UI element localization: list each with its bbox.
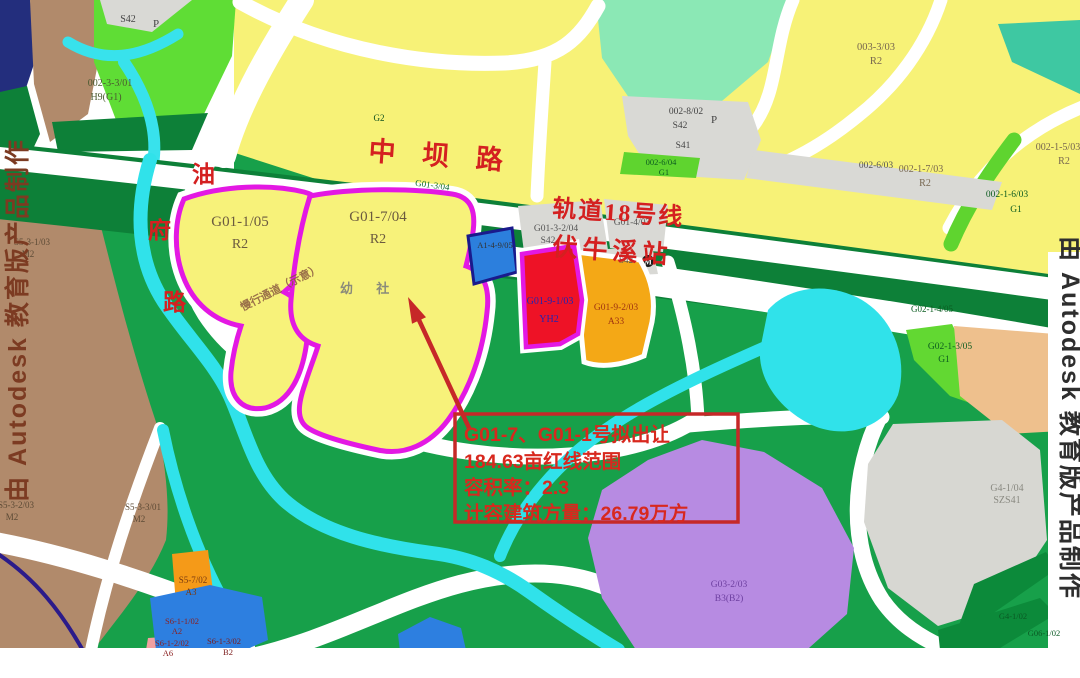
parcel-label: 002-1-5/03 <box>1036 142 1080 153</box>
parcel-label: G1 <box>938 355 950 365</box>
parcel-label: G1 <box>659 167 669 177</box>
road-top2 <box>537 62 545 196</box>
parcel-label: 002-1-7/03 <box>899 164 943 175</box>
parcel-label: A3 <box>186 587 197 597</box>
parcel-label: G1 <box>1010 205 1022 215</box>
annotation-line3: 容积率：2.3 <box>464 476 569 499</box>
parcel-label: M2 <box>133 514 146 524</box>
parcel-label: G06-1/02 <box>1028 628 1061 638</box>
parcel-label: R2 <box>919 178 931 189</box>
parcel-label: S5-7/02 <box>179 575 208 585</box>
annotation-line4: 计容建筑方量：26.79万方 <box>464 502 688 525</box>
parcel-label: G01-1/05 <box>211 214 269 230</box>
zoning-map: S42 P 002-3-3/01 H9(G1) 003-3/03 R2 002-… <box>0 0 1080 678</box>
parcel-label: G02-1-3/05 <box>928 342 973 352</box>
kindergarten-mark: 幼 社 <box>340 281 399 296</box>
annotation-line2: 184.63亩红线范围 <box>464 450 621 473</box>
parcel-label: S6-1-2/02 <box>155 638 189 648</box>
parcel-label: P <box>711 114 717 126</box>
parcel-label: A6 <box>163 648 173 658</box>
parcel-label: A2 <box>172 626 182 636</box>
youfu-road-char1: 油 <box>192 162 215 187</box>
parcel-label: 002-3-3/01 <box>88 78 132 89</box>
parcel-label: G01-9-1/03 <box>527 296 574 307</box>
parcel-label: S6-1-3/02 <box>207 636 241 646</box>
watermark-left: 由 Autodesk 教育版产品制作 <box>3 138 32 502</box>
youfu-road-char3: 路 <box>163 289 187 315</box>
parcel-label: B3(B2) <box>715 593 744 604</box>
parcel-label: S41 <box>676 141 691 151</box>
parcel-label: P <box>153 18 159 30</box>
parcel-label: R2 <box>1058 156 1070 167</box>
parcel-label: S5-3-3/01 <box>125 502 161 512</box>
parcel-label: G4-1/02 <box>999 611 1027 621</box>
parcel-label: 002-6/04 <box>646 157 677 167</box>
parcel-label: M2 <box>6 512 19 522</box>
parcel-label: S6-1-1/02 <box>165 616 199 626</box>
parcel-label: H9(G1) <box>90 92 121 103</box>
parcel-label: G03-2/03 <box>711 580 748 590</box>
parcel-label: R2 <box>370 232 386 247</box>
parcel-label: 002-1-6/03 <box>986 190 1028 200</box>
parcel-blue <box>468 228 517 284</box>
parcel-label: R2 <box>232 237 248 252</box>
parcel-label: 003-3/03 <box>857 42 895 53</box>
parcel-label: A33 <box>608 317 625 327</box>
parcel-label: A1-4-9/05 <box>477 240 512 250</box>
parcel-label: G02-1-4/05 <box>911 304 953 314</box>
parcel-label: G01-3-2/04 <box>534 224 579 234</box>
parcel-label: YH2 <box>539 314 558 325</box>
parcel-label: S42 <box>120 14 136 25</box>
annotation-line1: G01-7、G01-1号拟出让 <box>464 423 670 446</box>
parcel-label: 002-8/02 <box>669 107 704 117</box>
parcel-label: G01-7/04 <box>349 209 407 225</box>
watermark-right: 由 Autodesk 教育版产品制作 <box>1056 236 1080 600</box>
parcel-label: G01-9-2/03 <box>594 303 639 313</box>
parcel-label: G4-1/04 <box>990 483 1023 494</box>
parcel-label: B2 <box>223 647 233 657</box>
parcel-label: S42 <box>673 121 688 131</box>
parcel-label: R2 <box>870 56 882 67</box>
parcel-label: 002-6/03 <box>859 161 894 171</box>
parcel-label: SZS41 <box>993 495 1020 506</box>
parcel-label: G2 <box>374 113 385 123</box>
youfu-road-char2: 府 <box>148 217 171 243</box>
